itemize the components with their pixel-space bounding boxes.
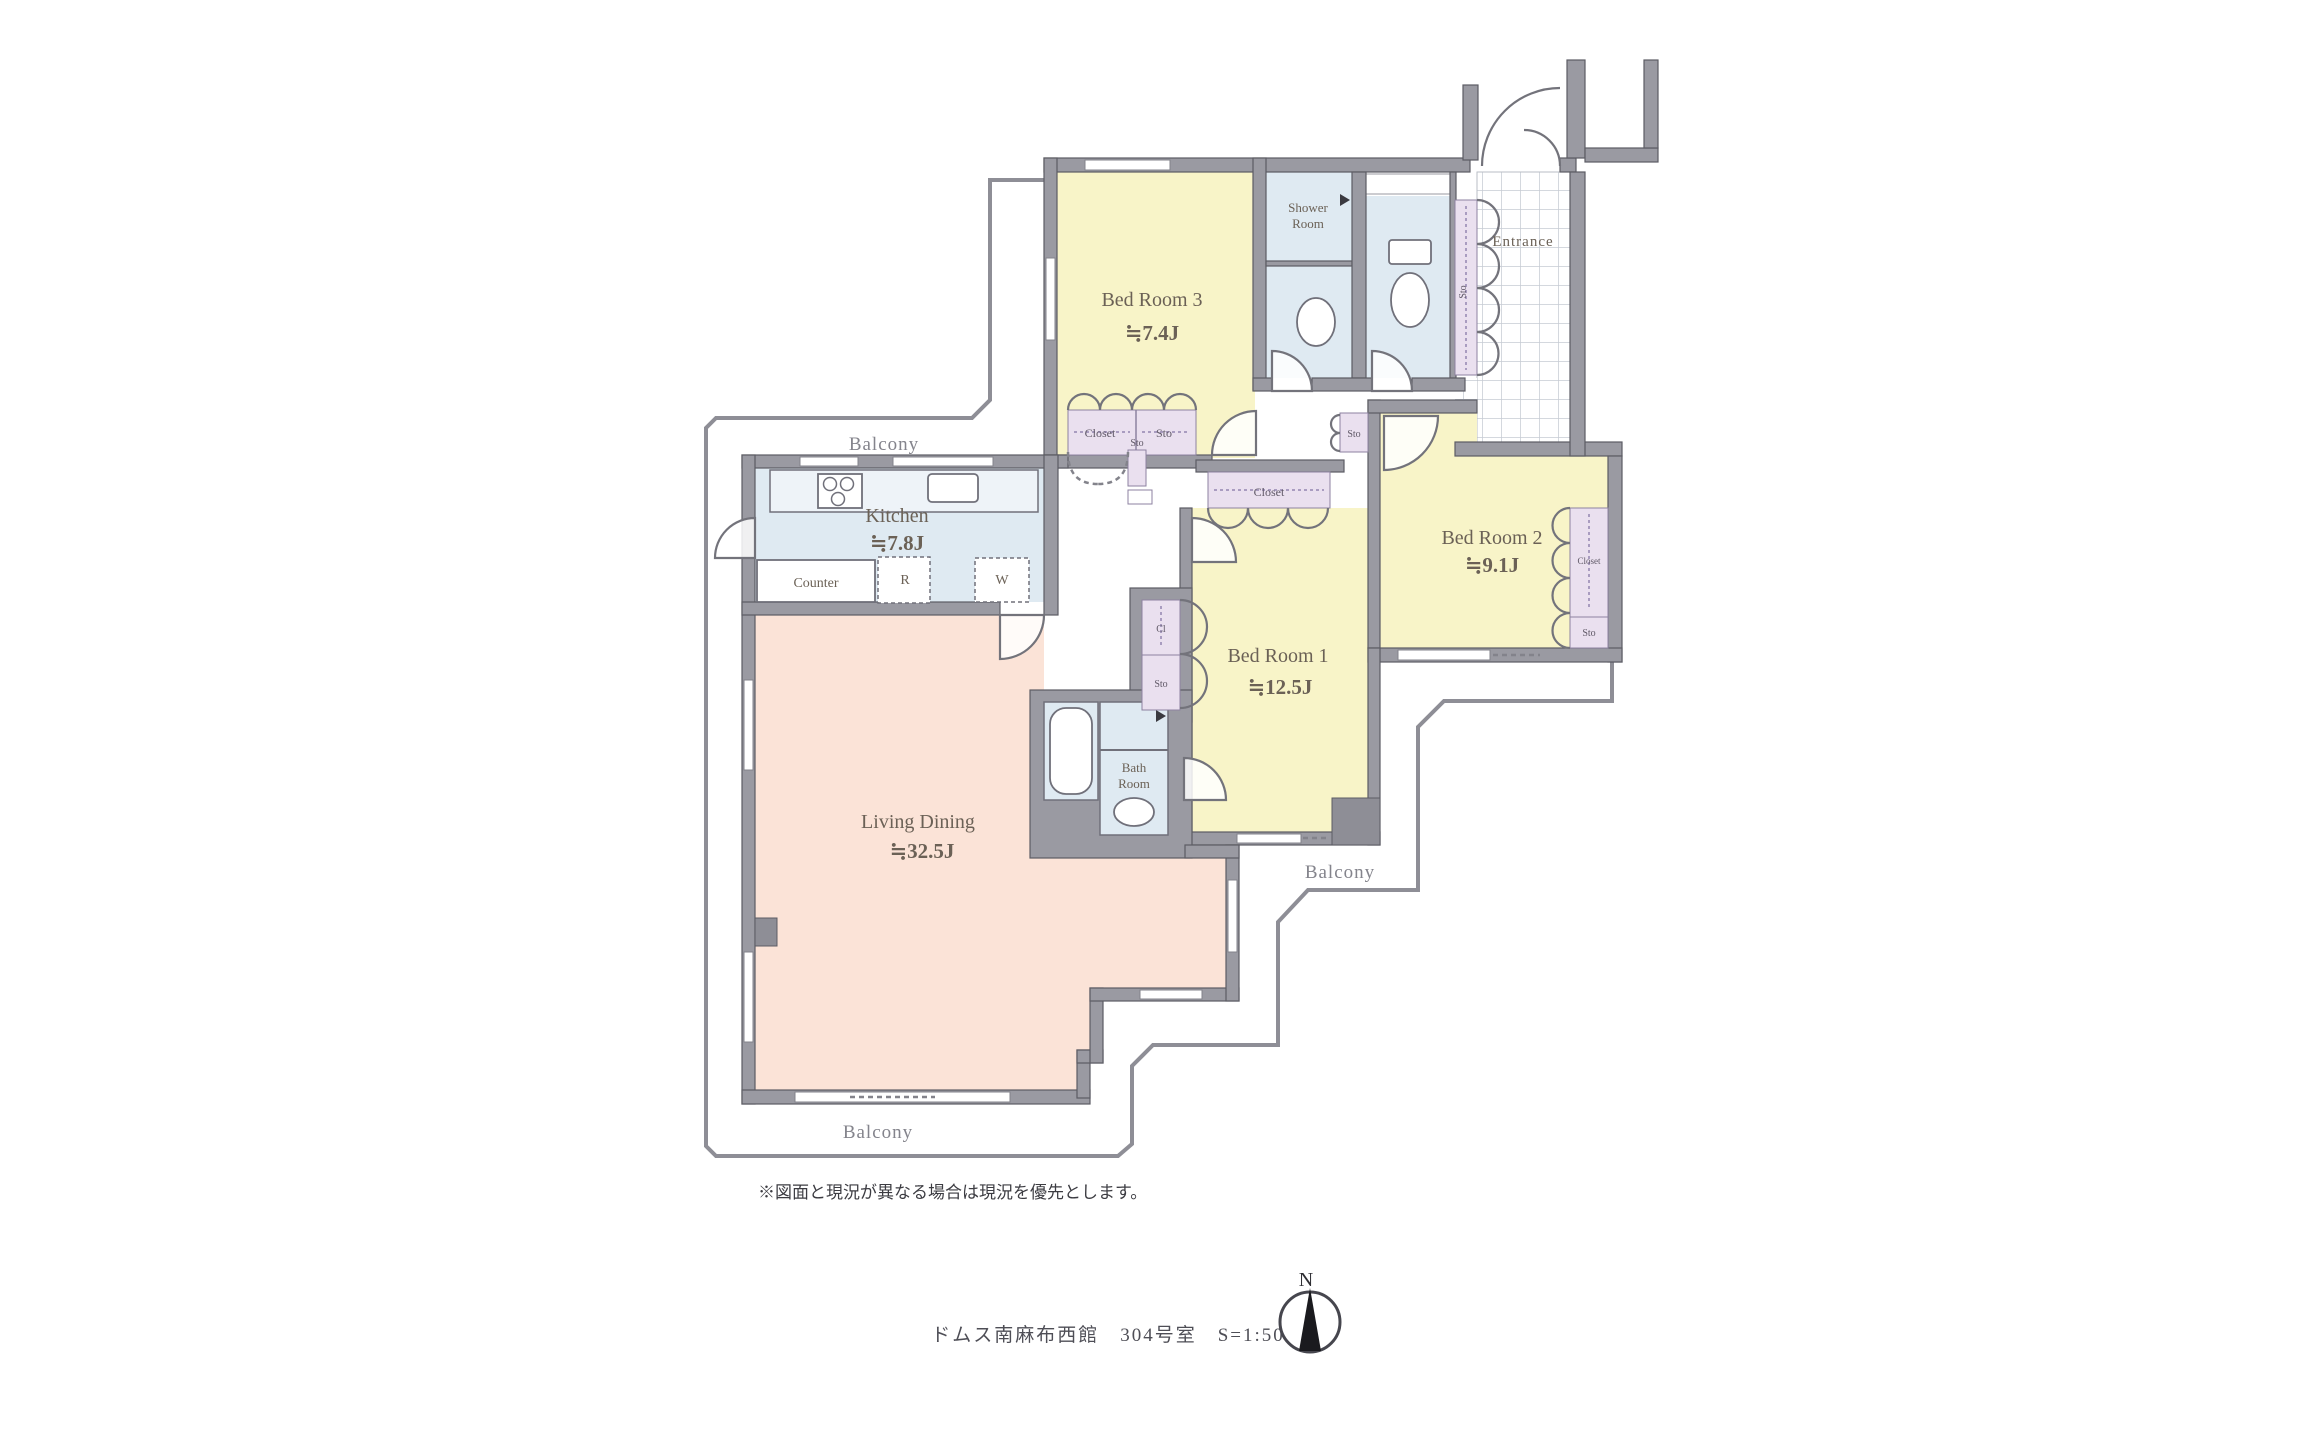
hall-shelf — [1128, 490, 1152, 504]
room-label-entrance: Entrance — [1492, 234, 1553, 250]
plan-caption: ドムス南麻布西館 304号室 S=1:50 — [931, 1324, 1285, 1346]
label-hall-sto: Sto — [1130, 438, 1143, 449]
balcony-label-south: Balcony — [843, 1122, 913, 1143]
label-bed1-closet: Closet — [1254, 485, 1285, 499]
hall-storage — [1128, 450, 1146, 486]
floor-plan: Bed Room 3 ≒7.4J Shower Room Entrance Be… — [0, 0, 2320, 1430]
label-bed3-sto: Sto — [1156, 426, 1172, 440]
room-label-shower-1: Shower — [1288, 200, 1328, 215]
room-label-living-size: ≒32.5J — [890, 839, 955, 863]
basin-icon — [1114, 798, 1154, 826]
vanity-basin-icon — [1297, 298, 1335, 346]
disclaimer-note: ※図面と現況が異なる場合は現況を優先とします。 — [758, 1183, 1147, 1202]
room-label-bed1-size: ≒12.5J — [1248, 675, 1313, 699]
label-hall-sto-2: Sto — [1347, 429, 1360, 440]
room-label-bed2-size: ≒9.1J — [1465, 553, 1519, 577]
floor-plan-page: Bed Room 3 ≒7.4J Shower Room Entrance Be… — [0, 0, 2320, 1430]
label-counter: Counter — [793, 576, 838, 591]
room-label-bed3-size: ≒7.4J — [1125, 321, 1179, 345]
label-washer: W — [995, 573, 1009, 588]
balcony-label-west: Balcony — [849, 434, 919, 455]
footer: ※図面と現況が異なる場合は現況を優先とします。 ドムス南麻布西館 304号室 S… — [758, 1183, 1340, 1352]
room-label-kitchen-size: ≒7.8J — [870, 531, 924, 555]
room-label-kitchen-name: Kitchen — [865, 505, 928, 527]
label-refrigerator: R — [900, 573, 910, 588]
hall-storage2-bifold-icon — [1331, 415, 1340, 451]
toilet-tank-icon — [1389, 240, 1431, 264]
wc-shelf — [1366, 174, 1452, 194]
label-bed3-closet: Closet — [1085, 426, 1116, 440]
kitchen-balcony-door-arc-icon — [715, 518, 755, 558]
label-entrance-sto: Sto — [1458, 285, 1469, 298]
label-bed2-sto: Sto — [1582, 628, 1595, 639]
compass-icon: N — [1280, 1269, 1340, 1352]
entrance-tile — [1477, 172, 1570, 442]
stove-icon — [818, 474, 862, 508]
room-label-bath-2: Room — [1118, 776, 1150, 791]
sink-icon — [928, 474, 978, 502]
label-bed1-cl: Cl — [1156, 624, 1166, 635]
label-bed1-sto: Sto — [1154, 679, 1167, 690]
toilet-icon — [1391, 273, 1429, 327]
room-label-bath-1: Bath — [1122, 760, 1147, 775]
room-label-bed2-name: Bed Room 2 — [1441, 527, 1542, 549]
compass-north-label: N — [1299, 1269, 1313, 1291]
entrance-door-arc-icon — [1482, 88, 1560, 166]
balcony-label-east: Balcony — [1305, 862, 1375, 883]
room-label-shower-2: Room — [1292, 216, 1324, 231]
room-label-bed1-name: Bed Room 1 — [1227, 645, 1328, 667]
label-bed2-closet: Closet — [1577, 556, 1601, 566]
room-label-living-name: Living Dining — [861, 811, 975, 833]
room-label-bed3-name: Bed Room 3 — [1101, 289, 1202, 311]
bathtub-icon — [1050, 708, 1092, 794]
